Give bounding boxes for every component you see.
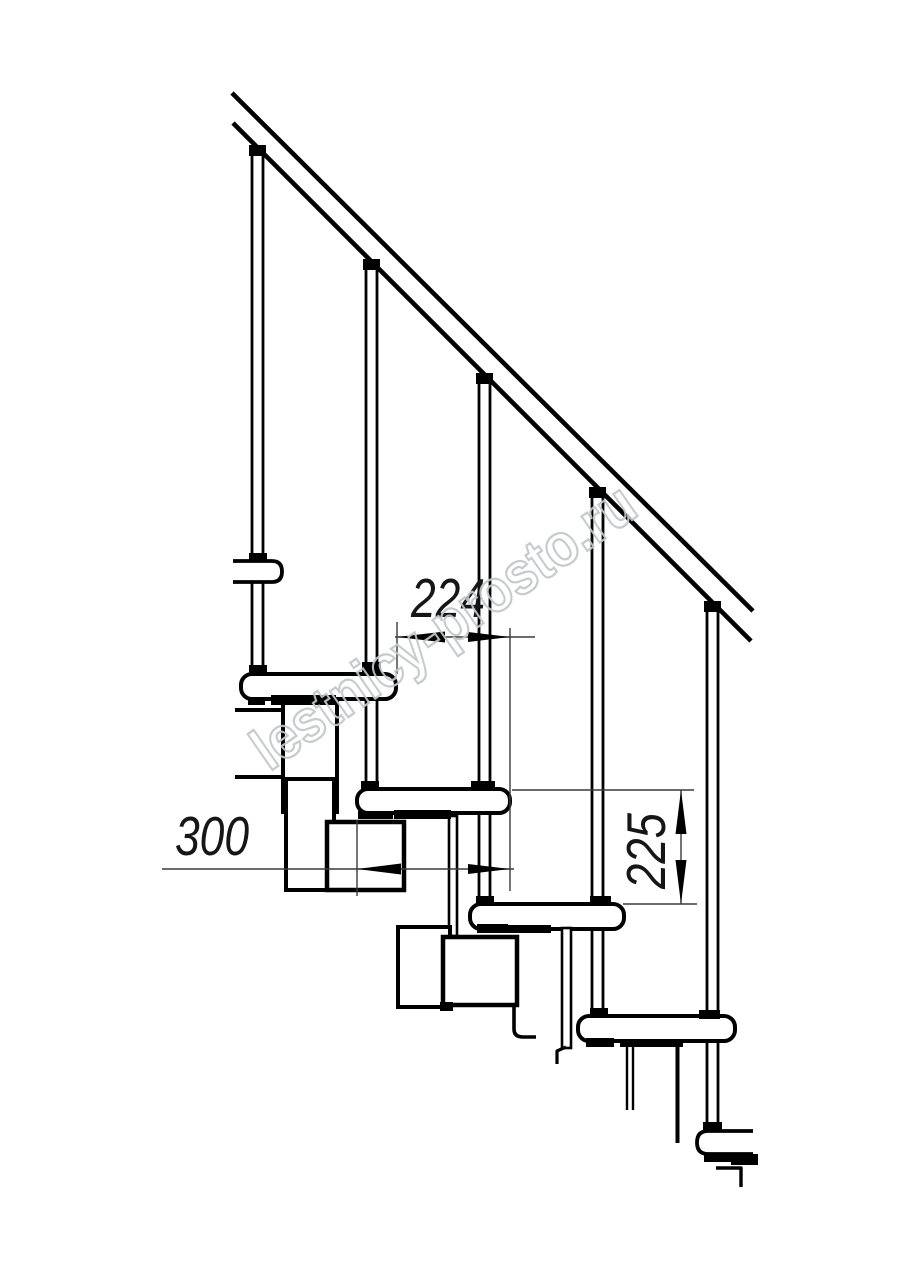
weld-band-tread5 xyxy=(620,1039,683,1047)
joint-b1-tread2 xyxy=(249,665,267,674)
block-under-tread6 xyxy=(731,1154,758,1165)
arrow-rise-down xyxy=(676,860,687,904)
weld-band-tread4 xyxy=(506,925,551,933)
dim-rise-label: 225 xyxy=(615,813,677,890)
joint-b2-tread3 xyxy=(361,781,379,790)
joint-b3-tread4 xyxy=(476,896,494,905)
nub-b4-under-tread5 xyxy=(586,1038,614,1047)
tread-1-stub xyxy=(233,561,282,582)
dim-depth-label: 300 xyxy=(175,805,249,867)
rail-tab-2 xyxy=(363,259,380,270)
arrow-rise-up xyxy=(676,790,687,834)
tread-3 xyxy=(357,789,510,813)
tread-6-stub xyxy=(697,1131,753,1154)
tread-5 xyxy=(578,1016,735,1041)
module-4-hook xyxy=(514,1004,536,1037)
joint-b4-tread5 xyxy=(590,1008,608,1017)
nub-b1-under-tread2 xyxy=(248,697,265,705)
collar-b4-tread4 xyxy=(590,896,611,906)
rail-tab-1 xyxy=(249,145,266,156)
handrail-upper-line xyxy=(232,93,753,611)
module-3-hanger-plate xyxy=(449,816,457,936)
weld-band-tread3 xyxy=(394,810,451,819)
watermark-text: lestnicy-prosto.ru xyxy=(239,470,648,783)
joint-b5-tread6 xyxy=(703,1122,722,1131)
module-4-foot xyxy=(440,1002,453,1011)
rail-tab-5 xyxy=(704,601,721,612)
collar-b5-tread5 xyxy=(699,1010,720,1019)
nub-b3-under-tread4 xyxy=(477,924,508,933)
collar-b3-tread3 xyxy=(471,781,495,791)
rail-tab-3 xyxy=(476,373,493,384)
staircase-drawing-page: 224300225lestnicy-prosto.ru xyxy=(0,0,914,1280)
nub-b2-under-tread3 xyxy=(358,811,393,819)
staircase-drawing: 224300225lestnicy-prosto.ru xyxy=(0,0,914,1280)
module-3-box xyxy=(327,822,404,890)
joint-b1-stub xyxy=(249,553,267,561)
module-5-hanger-hook xyxy=(557,1047,566,1064)
module-6-hook xyxy=(716,1168,741,1187)
module-4-box xyxy=(443,937,517,1005)
module-5-hanger-plate xyxy=(562,928,571,1048)
